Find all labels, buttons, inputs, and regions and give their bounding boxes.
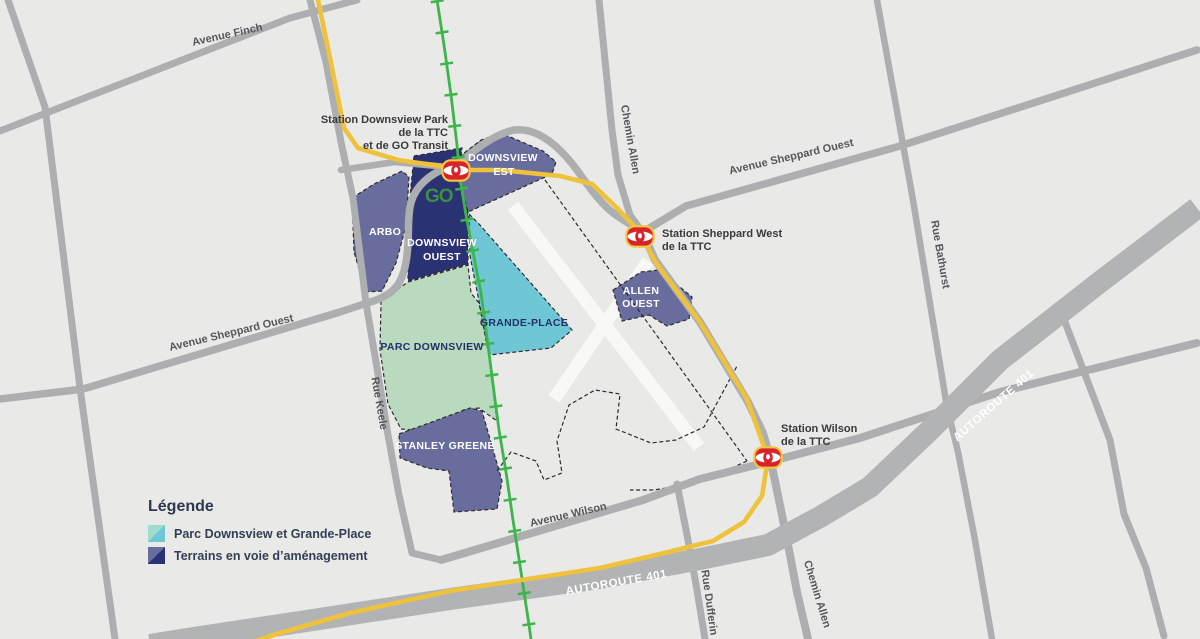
- boundary-inner-squiggle: [497, 366, 737, 480]
- label-allen-ouest-line2: OUEST: [622, 298, 660, 310]
- label-parc-downsview: PARC DOWNSVIEW: [380, 341, 483, 353]
- ttc-logo-wilson: [754, 447, 781, 467]
- label-downsview-est-line1: DOWNSVIEW: [468, 152, 538, 164]
- road-east-unnamed: [1065, 322, 1164, 636]
- station-downsview-park-line1: Station Downsview Park: [321, 114, 449, 126]
- label-arbo: ARBO: [369, 226, 401, 238]
- legend-item-terrains: Terrains en voie d’aménagement: [148, 547, 371, 564]
- station-wilson-line2: de la TTC: [781, 436, 831, 448]
- boundary-northeast: [545, 180, 747, 461]
- legend: Légende Parc Downsview et Grande-Place T…: [148, 498, 371, 569]
- station-sheppard-west-line2: de la TTC: [662, 241, 712, 253]
- legend-swatch-terrains-icon: [148, 547, 165, 564]
- label-stanley-greene: STANLEY GREENE: [395, 440, 495, 452]
- station-wilson-line1: Station Wilson: [781, 423, 858, 435]
- ttc-logo-downsview-park: [442, 160, 469, 180]
- legend-item-terrains-label: Terrains en voie d’aménagement: [174, 549, 368, 563]
- label-allen-ouest-line1: ALLEN: [623, 285, 660, 297]
- road-avenue-finch: [0, 0, 357, 131]
- label-downsview-ouest-line1: DOWNSVIEW: [407, 237, 477, 249]
- label-downsview-ouest-line2: OUEST: [423, 251, 461, 263]
- station-sheppard-west-line1: Station Sheppard West: [662, 228, 783, 240]
- go-transit-logo: GO: [425, 186, 453, 207]
- station-sheppard-west-label: Station Sheppard West de la TTC: [662, 228, 783, 253]
- legend-title: Légende: [148, 498, 371, 516]
- legend-swatch-parc-icon: [148, 525, 165, 542]
- map-canvas: GO Avenue Finch Avenue Sheppard Ouest Av…: [0, 0, 1200, 639]
- label-grande-place: GRANDE-PLACE: [480, 317, 568, 329]
- road-rue-bathurst: [877, 0, 992, 639]
- station-downsview-park-line2: de la TTC: [398, 127, 448, 139]
- station-downsview-park-line3: et de GO Transit: [363, 140, 448, 152]
- label-chemin-allen-north: Chemin Allen: [618, 104, 642, 175]
- legend-item-parc-label: Parc Downsview et Grande-Place: [174, 527, 371, 541]
- label-sheppard-ouest-east: Avenue Sheppard Ouest: [728, 137, 855, 177]
- label-downsview-est-line2: EST: [493, 166, 515, 178]
- legend-item-parc: Parc Downsview et Grande-Place: [148, 525, 371, 542]
- label-rue-bathurst: Rue Bathurst: [928, 219, 952, 289]
- ttc-logo-sheppard-west: [626, 226, 653, 246]
